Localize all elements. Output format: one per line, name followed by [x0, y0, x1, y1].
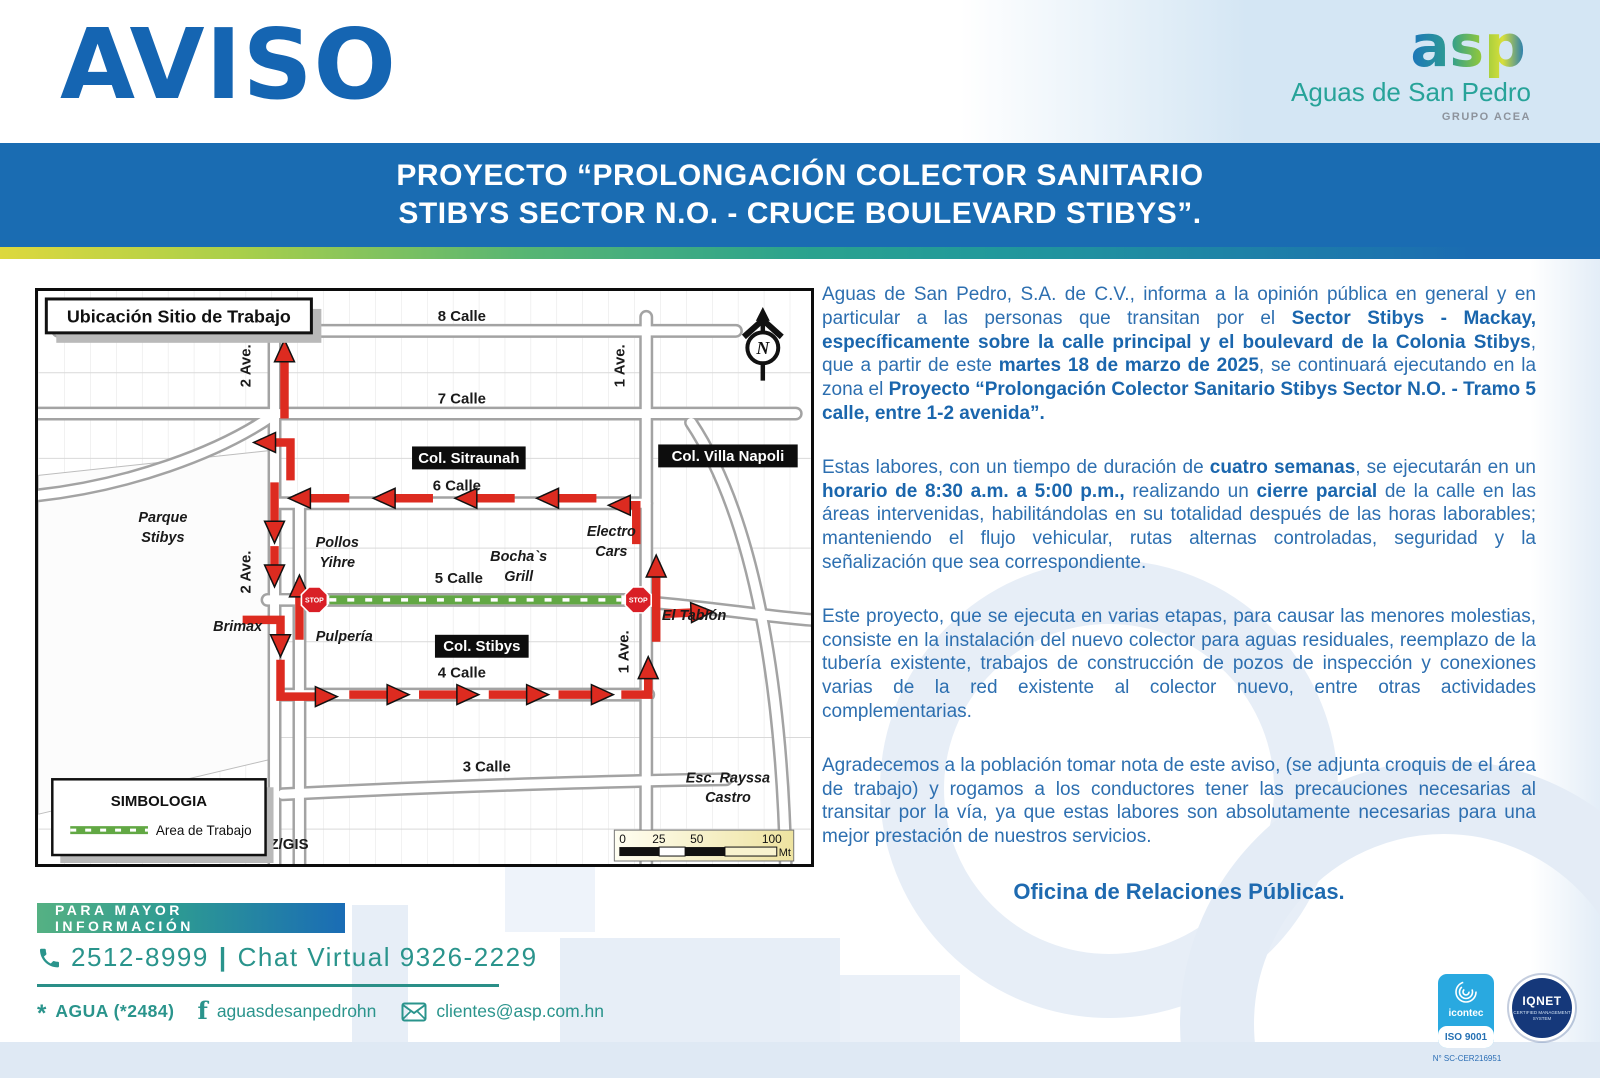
asterisk-icon: * [37, 1009, 46, 1019]
banner-gradient-strip [0, 247, 1600, 259]
svg-text:Ubicación Sitio de Trabajo: Ubicación Sitio de Trabajo [67, 306, 291, 326]
svg-text:Castro: Castro [705, 790, 751, 806]
svg-text:7 Calle: 7 Calle [438, 391, 486, 408]
watermark-shape [505, 862, 595, 932]
svg-text:Col. Villa Napoli: Col. Villa Napoli [672, 448, 785, 465]
project-banner-line2: STIBYS SECTOR N.O. - CRUCE BOULEVARD STI… [398, 195, 1201, 233]
svg-text:STOP: STOP [305, 598, 324, 605]
svg-text:4 Calle: 4 Calle [438, 665, 486, 682]
divider-rule [37, 984, 499, 987]
project-banner: PROYECTO “PROLONGACIÓN COLECTOR SANITARI… [0, 143, 1600, 247]
iqnet-label: IQNET [1522, 994, 1561, 1008]
iqnet-badge: IQNET CERTIFIED MANAGEMENT SYSTEM [1512, 978, 1572, 1038]
svg-text:50: 50 [690, 832, 704, 846]
certificate-number: N° SC-CER216951 [1428, 1054, 1506, 1063]
svg-text:N: N [755, 338, 770, 358]
notice-paragraphs: Aguas de San Pedro, S.A. de C.V., inform… [822, 283, 1536, 849]
icontec-badge: icontec ISO 9001 [1438, 974, 1494, 1048]
notice-body: Aguas de San Pedro, S.A. de C.V., inform… [822, 283, 1536, 905]
notice-paragraph: Aguas de San Pedro, S.A. de C.V., inform… [822, 283, 1536, 426]
notice-paragraph: Agradecemos a la población tomar nota de… [822, 754, 1536, 849]
phone-number: 2512-8999 [71, 942, 209, 973]
stop-sign: STOP [625, 587, 651, 613]
svg-text:1 Ave.: 1 Ave. [615, 630, 632, 673]
icontec-label: icontec [1438, 1008, 1494, 1019]
svg-text:Pulpería: Pulpería [316, 629, 373, 645]
svg-text:Electro: Electro [587, 524, 636, 540]
separator: | [219, 942, 228, 973]
project-banner-line1: PROYECTO “PROLONGACIÓN COLECTOR SANITARI… [396, 157, 1203, 195]
info-label-bar: PARA MAYOR INFORMACIÓN [37, 903, 345, 933]
contact-social-row: * AGUA (*2484) f aguasdesanpedrohn clien… [37, 997, 604, 1026]
iqnet-sublabel: CERTIFIED MANAGEMENT SYSTEM [1512, 1010, 1572, 1022]
svg-text:2 Ave.: 2 Ave. [238, 344, 255, 387]
svg-text:STOP: STOP [629, 598, 648, 605]
notice-text-segment: Proyecto “Prolongación Colector Sanitari… [822, 379, 1536, 424]
map-title-box: Ubicación Sitio de Trabajo [46, 299, 321, 343]
notice-text-segment: cuatro semanas [1210, 457, 1356, 478]
svg-text:25: 25 [652, 832, 666, 846]
svg-text:Esc. Rayssa: Esc. Rayssa [686, 770, 770, 786]
svg-text:Stibys: Stibys [141, 530, 184, 546]
svg-text:El Tablón: El Tablón [662, 608, 727, 624]
asp-logo-group: GRUPO ACEA [1442, 111, 1531, 123]
notice-text-segment: martes 18 de marzo de 2025 [999, 355, 1259, 376]
svg-text:SIMBOLOGIA: SIMBOLOGIA [111, 793, 207, 810]
svg-text:Pollos: Pollos [316, 535, 359, 551]
notice-text-segment: Estas labores, con un tiempo de duración… [822, 457, 1210, 478]
iso-9001-label: ISO 9001 [1438, 1026, 1494, 1048]
svg-text:Grill: Grill [504, 569, 534, 585]
envelope-icon [401, 1002, 427, 1022]
facebook-icon: f [197, 996, 207, 1025]
asp-logo: asp Aguas de San Pedro GRUPO ACEA [1286, 14, 1536, 126]
facebook-handle: aguasdesanpedrohn [217, 1001, 377, 1022]
map-legend: SIMBOLOGIA Area de Trabajo [52, 779, 273, 863]
asp-logo-mark: asp [1410, 14, 1525, 80]
svg-text:Bocha`s: Bocha`s [490, 549, 547, 565]
svg-text:Yihre: Yihre [320, 555, 356, 571]
svg-text:100: 100 [762, 832, 782, 846]
svg-text:Area de Trabajo: Area de Trabajo [156, 823, 252, 838]
notice-text-segment: , se ejecutarán en un [1355, 457, 1536, 478]
agua-shortcode: AGUA (*2484) [55, 1001, 174, 1022]
svg-text:Mt: Mt [779, 847, 791, 859]
page-title: AVISO [60, 8, 397, 121]
scale-bar: 0 25 50 100 Mt [614, 830, 793, 861]
svg-text:1 Ave.: 1 Ave. [611, 344, 628, 387]
svg-text:Parque: Parque [138, 510, 187, 526]
watermark-band [0, 1042, 1600, 1078]
svg-text:0: 0 [619, 832, 626, 846]
notice-text-segment: Agradecemos a la población tomar nota de… [822, 755, 1536, 847]
asp-logo-name: Aguas de San Pedro [1291, 77, 1531, 107]
icontec-spiral-icon [1453, 979, 1479, 1005]
email-address: clientes@asp.com.hn [436, 1001, 604, 1022]
phone-icon [37, 946, 61, 970]
svg-text:3 Calle: 3 Calle [463, 758, 511, 775]
svg-text:Cars: Cars [595, 544, 627, 560]
notice-paragraph: Este proyecto, que se ejecuta en varias … [822, 605, 1536, 724]
svg-text:Col. Stibys: Col. Stibys [443, 638, 520, 655]
info-label: PARA MAYOR INFORMACIÓN [55, 902, 327, 934]
work-site-map: STOP STOP 8 Calle 7 Calle 6 Calle 5 Call… [35, 288, 814, 867]
notice-text-segment: cierre parcial [1256, 481, 1377, 502]
svg-text:Col. Sitraunah: Col. Sitraunah [418, 450, 519, 467]
chat-virtual: Chat Virtual 9326-2229 [238, 942, 538, 973]
svg-text:8 Calle: 8 Calle [438, 308, 486, 325]
svg-text:2 Ave.: 2 Ave. [238, 551, 255, 594]
stop-sign: STOP [301, 587, 327, 613]
svg-text:Brimax: Brimax [213, 619, 263, 635]
certification-badges: icontec ISO 9001 N° SC-CER216951 IQNET C… [1438, 970, 1598, 1070]
notice-page: AVISO asp Aguas de San Pedro GRUPO ACEA … [0, 0, 1600, 1078]
notice-text-segment: Este proyecto, que se ejecuta en varias … [822, 606, 1536, 722]
notice-text-segment: realizando un [1125, 481, 1257, 502]
svg-text:5 Calle: 5 Calle [435, 570, 483, 587]
contact-phone-row: 2512-8999 | Chat Virtual 9326-2229 [37, 942, 538, 973]
notice-text-segment: horario de 8:30 a.m. a 5:00 p.m., [822, 481, 1125, 502]
notice-paragraph: Estas labores, con un tiempo de duración… [822, 456, 1536, 575]
signature: Oficina de Relaciones Públicas. [822, 879, 1536, 905]
svg-text:6 Calle: 6 Calle [433, 477, 481, 494]
